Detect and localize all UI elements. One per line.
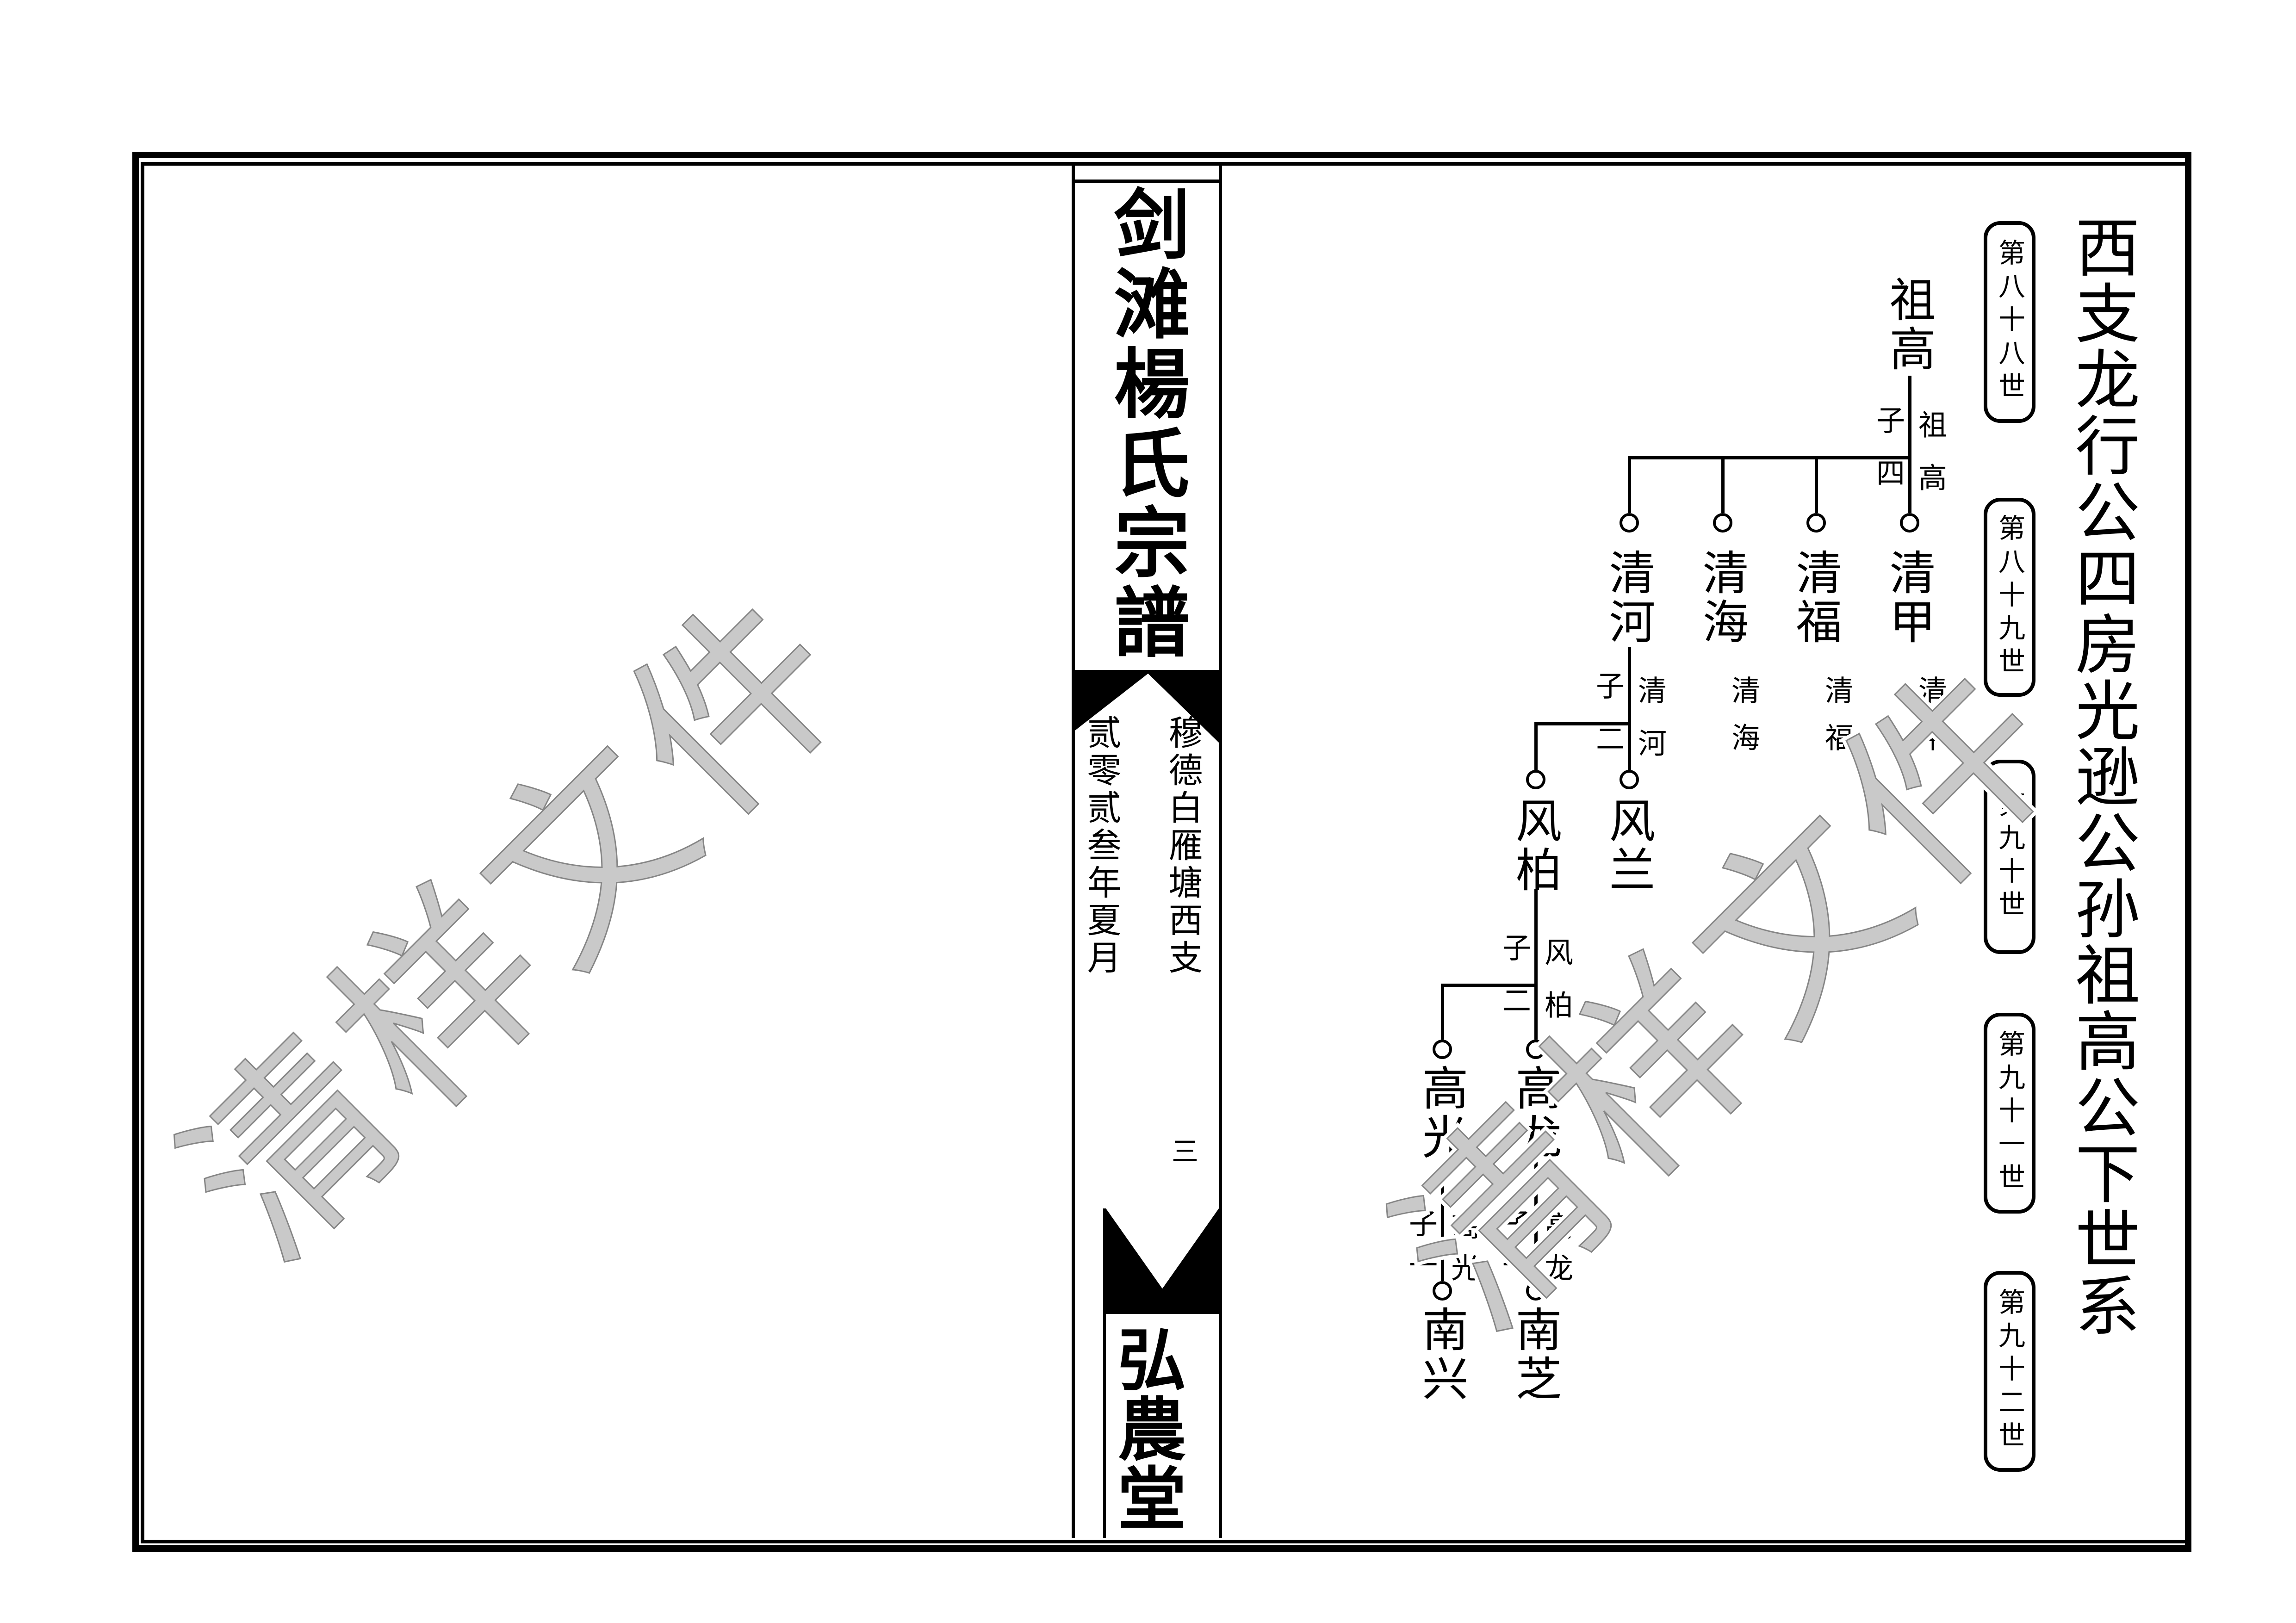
generation-box-89: 第八十九世 [1984,498,2035,697]
spine-top-rule [1072,180,1222,183]
spine-hall-name: 弘農堂 [1112,1324,1180,1532]
descent-line [1441,1162,1444,1281]
spine-volume-number: 三 [1169,1137,1196,1164]
descent-line [1628,647,1631,770]
continuation-tag: 清福 [1822,675,1851,770]
tree-node: 清海 [1698,549,1744,647]
person-marker [1900,513,1919,533]
sibling-bus [1628,456,1911,459]
person-marker [1526,1040,1545,1059]
generation-label: 第九十二世 [1996,1288,2023,1455]
lineage-page-title: 西支龙行公四房光逊公孙祖高公下世系 [2069,214,2134,1338]
person-marker [1620,513,1639,533]
descent-line [1534,1162,1538,1281]
junction-parent-name: 高龙 [1542,1211,1570,1295]
generation-label: 第八十八世 [1996,239,2023,405]
tree-node: 清福 [1792,549,1838,647]
genealogy-book-spread: 剑滩楊氏宗譜 穆德白雁塘西支 贰零贰叁年夏月 三 弘農堂 西支龙行公四房光逊公孙… [0,0,2296,1623]
junction-children-count: 子二 [1500,933,1528,1038]
drop-line [1721,456,1725,513]
junction-children-count: 子一 [1406,1208,1435,1292]
generation-label: 第八十九世 [1996,514,2023,681]
junction-children-count: 子二 [1593,671,1622,776]
junction-children-count: 子四 [1874,405,1902,511]
junction-parent-name: 祖高 [1916,410,1944,515]
tree-node: 风兰 [1605,797,1651,895]
continuation-tag: 清甲 [1916,675,1944,770]
drop-line [1441,984,1444,1040]
tree-node-ancestor: 祖高 [1885,276,1931,374]
junction-children-count: 子一 [1500,1208,1528,1292]
spine-branch-note: 穆德白雁塘西支 [1166,715,1200,977]
person-marker [1433,1040,1452,1059]
tree-node: 清甲 [1885,549,1931,647]
tree-node: 南芝 [1511,1306,1558,1404]
person-marker [1526,1281,1545,1301]
tree-node: 风柏 [1511,797,1558,895]
continuation-tag: 清海 [1729,675,1757,770]
drop-line [1534,722,1538,770]
generation-box-91: 第九十一世 [1984,1013,2035,1214]
person-marker [1620,770,1639,789]
tree-node: 高龙 [1511,1064,1558,1162]
generation-label: 第九十一世 [1996,1030,2023,1196]
spine-date-note: 贰零贰叁年夏月 [1084,715,1118,977]
person-marker [1433,1281,1452,1301]
generation-box-90: 第九十世 [1984,760,2035,954]
generation-label: 第九十世 [1996,790,2023,923]
junction-parent-name: 风柏 [1542,937,1570,1043]
person-marker [1806,513,1826,533]
person-marker [1526,770,1545,789]
spine-right-rule [1219,166,1222,1538]
junction-parent-name: 高光 [1448,1211,1477,1295]
junction-parent-name: 清河 [1635,675,1664,781]
drop-line [1815,456,1818,513]
person-marker [1713,513,1732,533]
spine-book-title: 剑滩楊氏宗譜 [1108,185,1184,663]
tree-node: 高光 [1418,1064,1464,1162]
tree-node: 南兴 [1418,1306,1464,1404]
descent-line [1908,376,1911,513]
descent-line [1534,889,1538,1040]
generation-box-92: 第九十二世 [1984,1271,2035,1472]
spine-left-rule [1072,166,1075,1538]
tree-node: 清河 [1605,549,1651,647]
drop-line [1628,456,1631,513]
generation-box-88: 第八十八世 [1984,221,2035,423]
